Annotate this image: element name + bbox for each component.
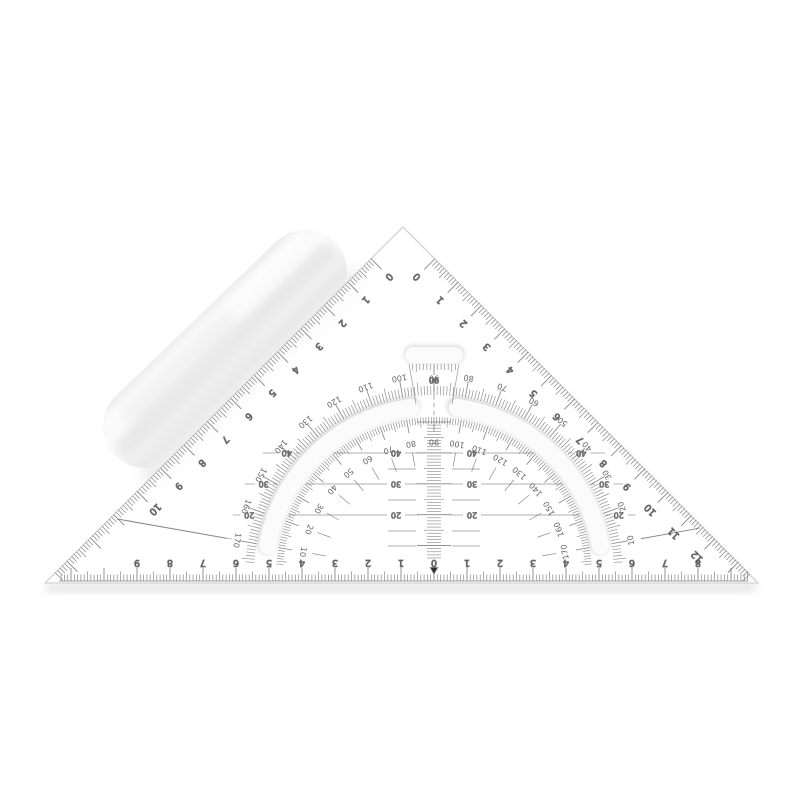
printed-number: 10: [626, 535, 637, 547]
set-square-photo: 0123456789100123456789101112987654321012…: [0, 0, 800, 800]
printed-number: 20: [614, 511, 624, 520]
printed-number: 90: [429, 376, 439, 385]
printed-number: 80: [463, 373, 475, 384]
printed-number: 3: [332, 557, 338, 568]
printed-number: 30: [599, 480, 609, 489]
printed-number: 7: [200, 557, 206, 568]
printed-number: 40: [467, 449, 477, 458]
printed-number: 9: [134, 557, 140, 568]
printed-number: 10: [298, 546, 309, 558]
printed-number: 6: [233, 557, 239, 568]
printed-number: 30: [391, 480, 401, 489]
printed-number: 80: [405, 439, 417, 450]
printed-number: 40: [576, 449, 586, 458]
printed-number: 20: [467, 511, 477, 520]
printed-number: 5: [266, 557, 272, 568]
printed-number: 40: [391, 449, 401, 458]
printed-number: 30: [467, 480, 477, 489]
printed-number: 20: [391, 511, 401, 520]
printed-number: 40: [282, 449, 292, 458]
printed-number: 30: [259, 480, 269, 489]
printed-number: 7: [662, 557, 668, 568]
printed-number: 1: [398, 557, 404, 568]
printed-number: 4: [299, 557, 305, 568]
printed-number: 2: [497, 557, 503, 568]
printed-number: 8: [695, 557, 701, 568]
printed-number: 2: [365, 557, 371, 568]
printed-number: 20: [244, 511, 254, 520]
printed-number: 1: [464, 557, 470, 568]
printed-number: 8: [167, 557, 173, 568]
printed-number: 0: [431, 557, 437, 568]
printed-number: 5: [596, 557, 602, 568]
printed-number: 3: [530, 557, 536, 568]
printed-number: 90: [429, 438, 439, 447]
printed-number: 6: [629, 557, 635, 568]
product-photo: 0123456789100123456789101112987654321012…: [0, 0, 800, 800]
